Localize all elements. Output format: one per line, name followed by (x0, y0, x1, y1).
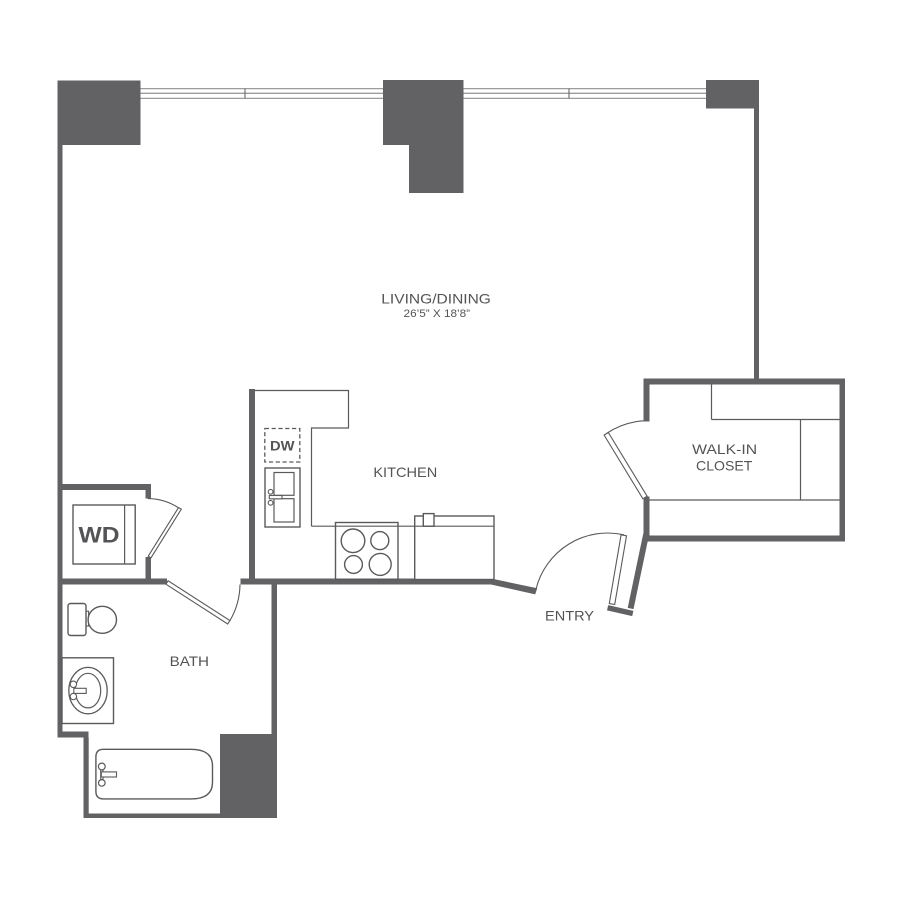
svg-text:BATH: BATH (170, 653, 209, 669)
svg-text:26’5” X 18’8”: 26’5” X 18’8” (404, 308, 471, 320)
svg-text:KITCHEN: KITCHEN (373, 464, 437, 480)
svg-text:LIVING/DINING: LIVING/DINING (381, 291, 491, 307)
svg-text:WD: WD (79, 523, 120, 548)
svg-text:DW: DW (270, 439, 295, 454)
svg-text:CLOSET: CLOSET (696, 458, 753, 474)
svg-text:WALK-IN: WALK-IN (692, 441, 757, 457)
svg-text:ENTRY: ENTRY (545, 607, 595, 623)
